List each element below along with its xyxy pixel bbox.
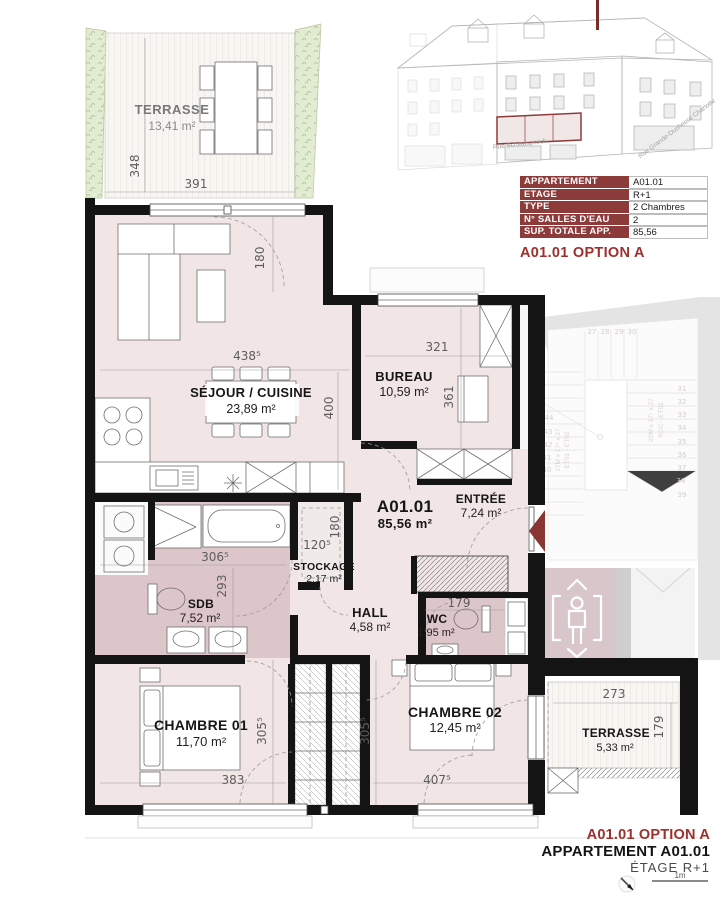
room-area: 12,45 m² bbox=[429, 720, 481, 735]
table-row: ETAGE R+1 bbox=[520, 189, 708, 202]
stair-number: 31 bbox=[678, 385, 687, 393]
room-label: TERRASSE bbox=[135, 102, 210, 117]
dim-407: 407⁵ bbox=[423, 773, 451, 787]
stair-number: 44 bbox=[545, 414, 554, 422]
option-label-top: A01.01 OPTION A bbox=[520, 245, 645, 261]
north-compass-icon bbox=[619, 876, 635, 892]
table-row: SUP. TOTALE APP. (M²) 85,56 bbox=[520, 226, 708, 239]
balcony-sill bbox=[370, 268, 484, 292]
room-area: 23,89 m² bbox=[226, 402, 275, 416]
row-value: R+1 bbox=[629, 189, 708, 202]
room-area: 13,41 m² bbox=[148, 119, 195, 133]
bureau-wardrobe bbox=[480, 305, 512, 367]
unit-area: 85,56 m² bbox=[378, 516, 433, 531]
room-area: 1,95 m² bbox=[417, 627, 455, 639]
row-label: N° SALLES D'EAU bbox=[520, 214, 629, 227]
dim-383: 383 bbox=[222, 773, 245, 787]
stair-number: 33 bbox=[678, 411, 687, 419]
room-area: 4,58 m² bbox=[350, 620, 391, 634]
room-label: BUREAU bbox=[375, 369, 432, 384]
table-row: APPARTEMENT A01.01 bbox=[520, 176, 708, 189]
stair-number: 38 bbox=[677, 477, 686, 485]
dim-348: 348 bbox=[128, 155, 142, 178]
room-area: 10,59 m² bbox=[379, 385, 428, 399]
bathtub bbox=[203, 505, 290, 547]
room-area: 7,52 m² bbox=[180, 611, 221, 625]
coffee-table bbox=[197, 270, 225, 322]
room-area: 2,17 m² bbox=[306, 573, 342, 585]
stair-note: RDC - ET01 bbox=[658, 402, 665, 438]
stair-number: 29 bbox=[615, 328, 624, 336]
stair-number: 39 bbox=[678, 491, 687, 499]
dim-391: 391 bbox=[185, 177, 208, 191]
section-marker bbox=[596, 0, 599, 30]
option-label-bottom: A01.01 OPTION A bbox=[390, 827, 710, 843]
room-area: 5,33 m² bbox=[596, 742, 634, 754]
scale-label: 1m bbox=[674, 871, 685, 880]
dim-305-1: 305⁵ bbox=[255, 717, 269, 745]
room-label: TERRASSE bbox=[582, 726, 650, 740]
laundry-niche bbox=[95, 502, 148, 575]
row-value: 2 bbox=[629, 214, 708, 227]
stair-number: 34 bbox=[678, 424, 687, 432]
apartment-info-table: APPARTEMENT A01.01 ETAGE R+1 TYPE 2 Cham… bbox=[520, 176, 708, 239]
row-label: APPARTEMENT bbox=[520, 176, 629, 189]
room-label: CHAMBRE 01 bbox=[154, 717, 248, 733]
wardrobe-2 bbox=[332, 664, 360, 805]
table-row: N° SALLES D'EAU 2 bbox=[520, 214, 708, 227]
dim-321: 321 bbox=[426, 340, 449, 354]
stair-number: 37 bbox=[678, 464, 687, 472]
row-label: SUP. TOTALE APP. (M²) bbox=[520, 226, 629, 239]
dim-306: 306⁵ bbox=[201, 550, 229, 564]
room-area: 7,24 m² bbox=[461, 506, 502, 520]
room-label: SDB bbox=[188, 597, 214, 611]
entry-closet bbox=[417, 449, 512, 479]
elevator bbox=[536, 568, 695, 658]
dim-180-door: 180 bbox=[253, 247, 267, 270]
dim-180-stockage: 180 bbox=[328, 516, 342, 539]
stair-number: 30 bbox=[628, 328, 637, 336]
outdoor-dining-table bbox=[200, 62, 272, 154]
title-block: A01.01 OPTION A APPARTEMENT A01.01 ÉTAGE… bbox=[390, 827, 710, 875]
stair-number: 28 bbox=[601, 328, 610, 336]
building-elevation-illustration: Rue Schlaaspesch Rue Grande-Duchesse Cha… bbox=[398, 0, 717, 170]
row-value: 85,56 bbox=[629, 226, 708, 239]
stair-number: 36 bbox=[678, 451, 687, 459]
room-label: WC bbox=[427, 612, 448, 626]
dim-400: 400 bbox=[322, 397, 336, 420]
dim-120: 120⁵ bbox=[303, 538, 331, 552]
scale-bar: 1m bbox=[652, 871, 708, 882]
dim-179-terrace: 179 bbox=[652, 716, 666, 739]
shower bbox=[150, 505, 201, 548]
floor-plan-drawing: Rue Schlaaspesch Rue Grande-Duchesse Cha… bbox=[0, 0, 723, 900]
dim-273: 273 bbox=[603, 687, 626, 701]
room-label: SÉJOUR / CUISINE bbox=[190, 385, 312, 400]
stair-note: 17M x 17⁵ x 27 bbox=[555, 428, 562, 472]
row-label: TYPE bbox=[520, 201, 629, 214]
dim-438: 438⁵ bbox=[233, 349, 261, 363]
desk bbox=[458, 376, 488, 422]
dim-293: 293 bbox=[215, 575, 229, 598]
terrace-top: TERRASSE 13,41 m² 348 391 bbox=[86, 24, 321, 198]
duct-shaft bbox=[505, 598, 528, 658]
row-value: A01.01 bbox=[629, 176, 708, 189]
room-label: CHAMBRE 02 bbox=[408, 704, 502, 720]
stair-number: 27 bbox=[588, 328, 597, 336]
stair-number: 35 bbox=[678, 438, 687, 446]
room-label: ENTRÉE bbox=[456, 491, 506, 506]
room-label: STOCKAGE bbox=[293, 561, 355, 573]
stair-number: 32 bbox=[678, 398, 687, 406]
row-label: ETAGE bbox=[520, 189, 629, 202]
dim-305-2: 305⁵ bbox=[358, 717, 372, 745]
dim-179-wc: 179 bbox=[448, 596, 471, 610]
room-area: 11,70 m² bbox=[176, 734, 227, 749]
wardrobe-1 bbox=[295, 664, 326, 805]
stair-note: 22M x 17⁵ x 27 bbox=[648, 398, 655, 442]
row-value: 2 Chambres bbox=[629, 201, 708, 214]
dim-361: 361 bbox=[442, 386, 456, 409]
room-label: HALL bbox=[352, 605, 388, 620]
coat-rack bbox=[415, 556, 508, 592]
table-row: TYPE 2 Chambres bbox=[520, 201, 708, 214]
unit-code: A01.01 bbox=[377, 497, 434, 516]
floor-plan-page: Rue Schlaaspesch Rue Grande-Duchesse Cha… bbox=[0, 0, 723, 900]
apartment-title: APPARTEMENT A01.01 bbox=[390, 843, 710, 860]
scale-line bbox=[652, 880, 708, 882]
terrace-bottom: TERRASSE 5,33 m² 273 179 bbox=[548, 682, 680, 793]
stair-note: ET01 - ET02 bbox=[564, 431, 571, 468]
